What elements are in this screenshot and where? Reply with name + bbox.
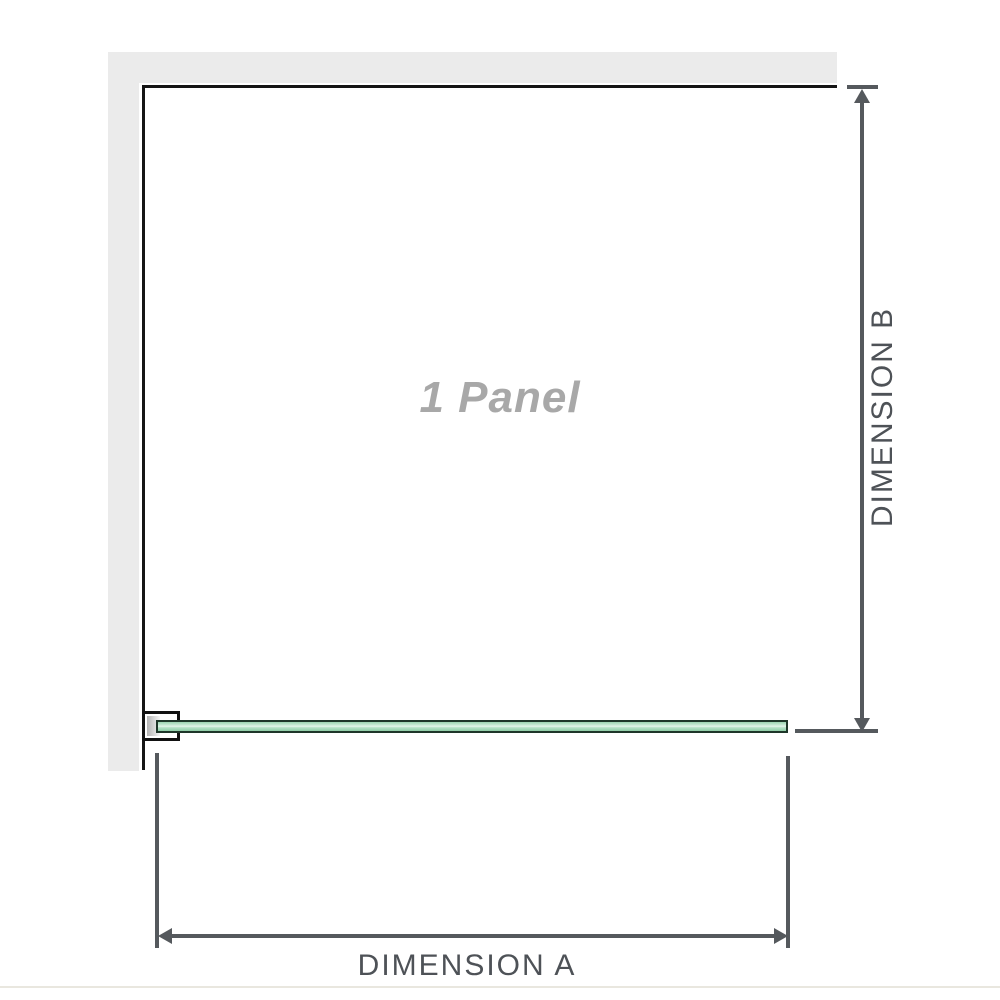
dimension-a-line xyxy=(166,934,780,938)
arrow-right-icon xyxy=(774,928,788,944)
dimension-a-extension-left xyxy=(155,753,159,948)
dimension-a-label: DIMENSION A xyxy=(358,949,577,983)
wall-segment-left xyxy=(108,52,139,771)
dimension-b-line xyxy=(860,95,864,725)
wall-segment-top xyxy=(108,52,837,83)
glass-panel xyxy=(156,720,788,733)
dimension-b-label: DIMENSION B xyxy=(866,307,900,527)
panel-outline-left xyxy=(142,85,145,770)
arrow-down-icon xyxy=(854,718,870,732)
arrow-up-icon xyxy=(854,89,870,103)
panel-label: 1 Panel xyxy=(419,373,580,423)
arrow-left-icon xyxy=(158,928,172,944)
panel-outline-top xyxy=(142,85,837,88)
shower-panel-diagram: 1 Panel DIMENSION B DIMENSION A xyxy=(0,0,1000,1000)
dimension-a-extension-right xyxy=(786,756,790,948)
baseline-divider xyxy=(0,986,1000,988)
